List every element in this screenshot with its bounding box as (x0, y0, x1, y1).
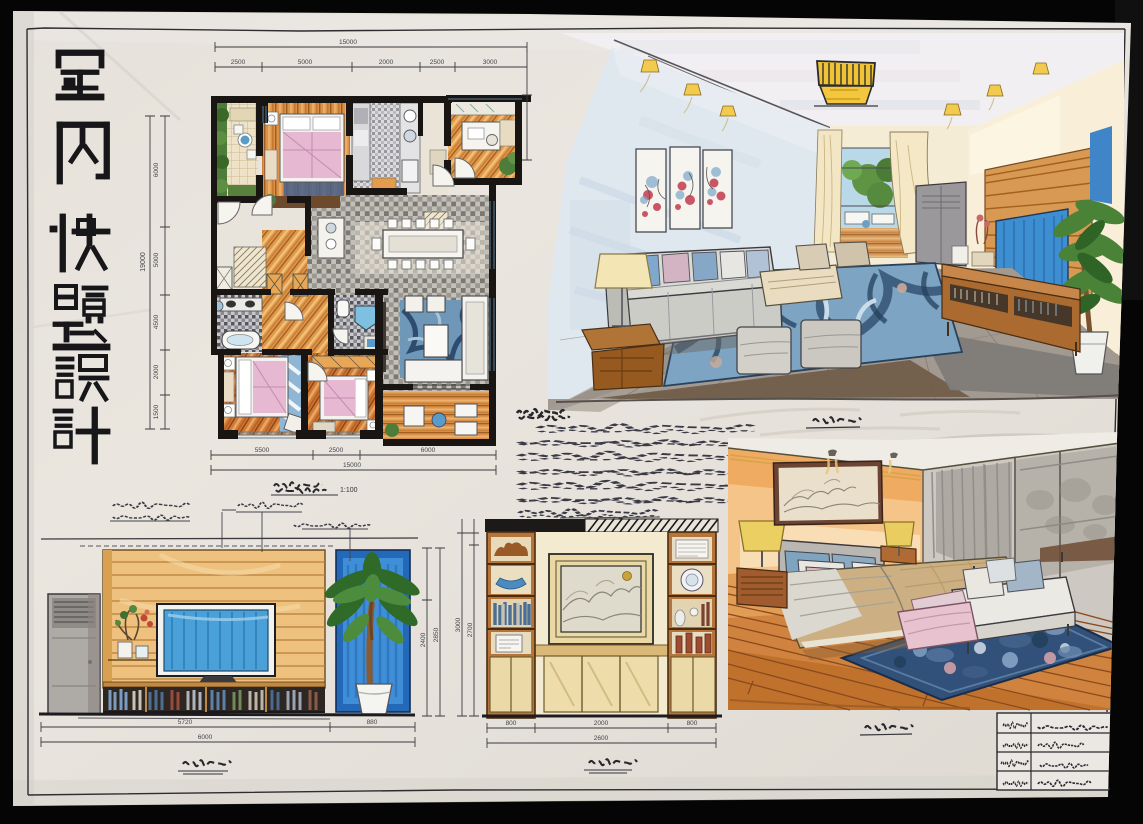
svg-text:1:100: 1:100 (340, 487, 358, 494)
svg-text:2400: 2400 (420, 632, 427, 647)
svg-text:6000: 6000 (198, 734, 213, 741)
svg-text:6000: 6000 (153, 162, 160, 177)
svg-text:2500: 2500 (430, 59, 445, 66)
svg-text:3000: 3000 (483, 59, 498, 66)
svg-text:5000: 5000 (298, 59, 313, 66)
svg-text:800: 800 (506, 720, 517, 727)
svg-text:6000: 6000 (421, 447, 436, 454)
svg-text:3000: 3000 (455, 617, 462, 632)
svg-text:880: 880 (367, 719, 378, 726)
svg-text:15000: 15000 (339, 39, 357, 46)
svg-text:19000: 19000 (140, 252, 147, 272)
svg-text:2500: 2500 (231, 59, 246, 66)
svg-text:2000: 2000 (379, 59, 394, 66)
svg-text:5000: 5000 (153, 252, 160, 267)
svg-text:5720: 5720 (178, 719, 193, 726)
svg-text:1500: 1500 (153, 404, 160, 419)
svg-text:800: 800 (687, 720, 698, 727)
svg-text:2850: 2850 (433, 627, 440, 642)
svg-text:4500: 4500 (153, 314, 160, 329)
svg-text:2600: 2600 (594, 735, 609, 742)
svg-text:15000: 15000 (343, 462, 361, 469)
svg-text:2500: 2500 (329, 447, 344, 454)
svg-text:5500: 5500 (255, 447, 270, 454)
svg-text:2700: 2700 (467, 622, 474, 637)
svg-text:2000: 2000 (153, 364, 160, 379)
svg-text:2000: 2000 (594, 720, 609, 727)
